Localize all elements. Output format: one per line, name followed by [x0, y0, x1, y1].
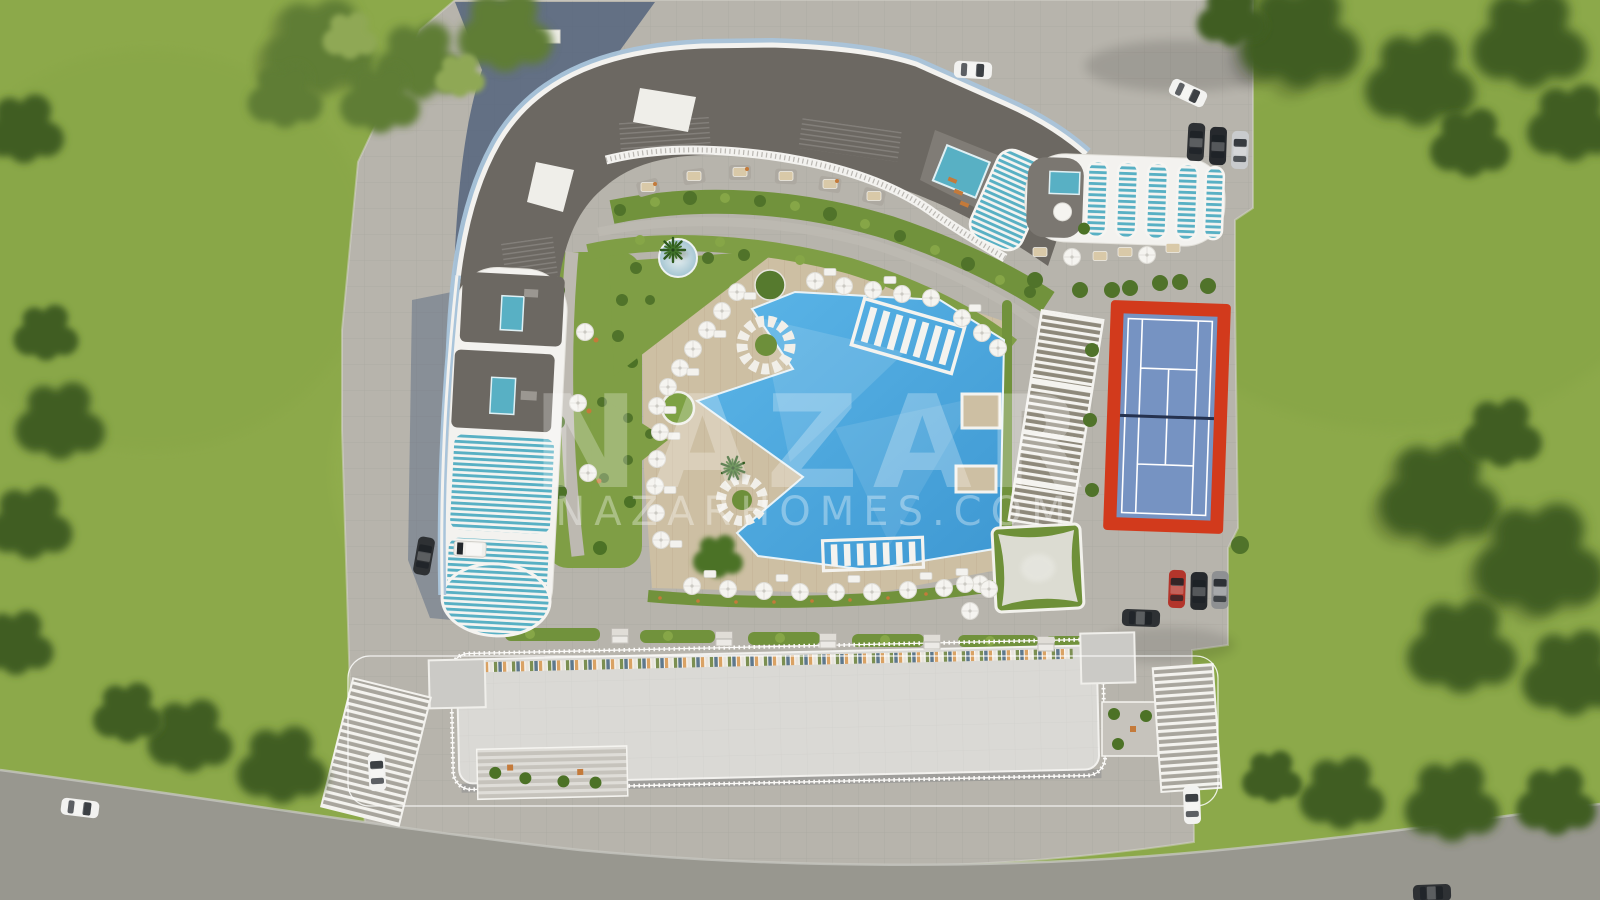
car: [1183, 786, 1201, 825]
terrace-pool: [500, 296, 524, 331]
tennis-court: [1103, 300, 1231, 534]
watermark: NAZAR NAZARHOMES.COM: [532, 369, 1099, 535]
terrace-pool: [490, 377, 516, 414]
shade-sail: [992, 524, 1084, 612]
car: [1231, 131, 1249, 170]
round-planter-bush: [755, 270, 785, 300]
striped-apartment-block-east: [965, 145, 1227, 255]
car: [954, 61, 993, 80]
stair-core-west: [429, 659, 486, 708]
car-suv: [1122, 609, 1161, 627]
site-plan-render: NAZAR NAZARHOMES.COM: [0, 0, 1600, 900]
watermark-website: NAZARHOMES.COM: [555, 489, 1074, 535]
car: [1209, 127, 1227, 166]
car: [368, 753, 387, 792]
courtyard-west: [477, 746, 628, 799]
aerial-render-stage: NAZAR NAZARHOMES.COM: [0, 0, 1600, 900]
stair-core-east: [1080, 632, 1135, 683]
long-apartment-block-south: [428, 632, 1137, 800]
van: [454, 541, 487, 558]
car: [1168, 570, 1186, 609]
entry-ramp-east: [1153, 664, 1222, 792]
courtyard-east: [1102, 702, 1158, 756]
car: [1413, 884, 1452, 900]
car: [1187, 123, 1206, 162]
car: [1211, 571, 1229, 609]
car: [1190, 572, 1208, 610]
